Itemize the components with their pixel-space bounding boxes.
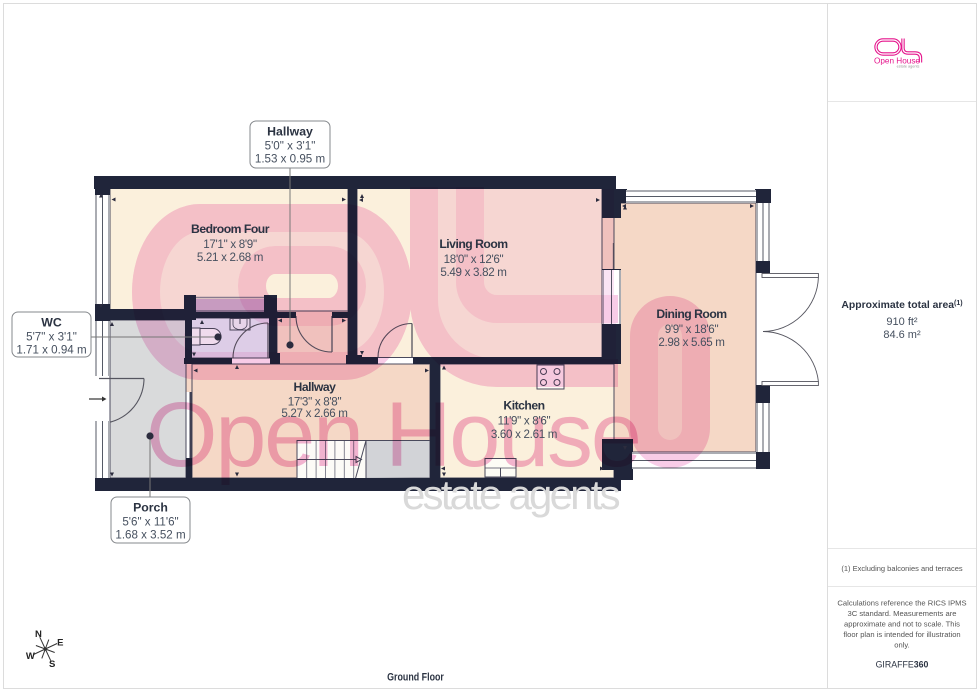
svg-text:18'0" x 12'6": 18'0" x 12'6" <box>444 253 504 266</box>
svg-text:Hallway: Hallway <box>267 125 313 139</box>
svg-text:Ground Floor: Ground Floor <box>387 672 444 684</box>
svg-text:S: S <box>49 659 55 670</box>
svg-text:Bedroom Four: Bedroom Four <box>191 222 270 236</box>
svg-text:17'1" x 8'9": 17'1" x 8'9" <box>203 238 257 251</box>
svg-text:5'6" x 11'6": 5'6" x 11'6" <box>122 515 178 528</box>
svg-text:3.60 x 2.61 m: 3.60 x 2.61 m <box>491 428 557 441</box>
svg-text:9'9" x 18'6": 9'9" x 18'6" <box>665 323 719 336</box>
svg-text:WC: WC <box>41 316 62 330</box>
svg-text:5.21 x 2.68 m: 5.21 x 2.68 m <box>197 251 263 264</box>
svg-text:2.98 x 5.65 m: 2.98 x 5.65 m <box>658 336 724 349</box>
svg-text:Porch: Porch <box>133 501 168 515</box>
svg-text:910 ft²: 910 ft² <box>886 316 918 328</box>
svg-text:Calculations reference the RIC: Calculations reference the RICS IPMS <box>837 599 966 608</box>
svg-text:3C standard. Measurements are: 3C standard. Measurements are <box>848 609 957 618</box>
svg-text:Living Room: Living Room <box>439 237 508 251</box>
svg-text:Dining Room: Dining Room <box>656 307 727 321</box>
svg-text:Hallway: Hallway <box>294 380 337 394</box>
svg-text:11'9" x 8'6": 11'9" x 8'6" <box>498 415 551 428</box>
svg-text:5.27 x 2.66 m: 5.27 x 2.66 m <box>281 407 347 420</box>
svg-text:1.68 x 3.52 m: 1.68 x 3.52 m <box>115 528 185 541</box>
svg-text:GIRAFFE360: GIRAFFE360 <box>876 660 929 670</box>
svg-text:floor plan is intended for ill: floor plan is intended for illustration <box>843 630 960 639</box>
svg-text:5'7" x 3'1": 5'7" x 3'1" <box>26 330 77 343</box>
svg-text:84.6 m²: 84.6 m² <box>883 329 921 341</box>
svg-text:W: W <box>26 651 35 662</box>
svg-text:Approximate total area(1): Approximate total area(1) <box>841 300 962 312</box>
svg-text:5.49 x 3.82 m: 5.49 x 3.82 m <box>440 266 506 279</box>
svg-text:approximate and not to scale.: approximate and not to scale. This <box>844 620 960 629</box>
svg-text:estate agents: estate agents <box>897 65 920 69</box>
svg-text:Kitchen: Kitchen <box>503 399 544 413</box>
svg-text:estate agents: estate agents <box>402 471 620 518</box>
svg-text:(1) Excluding balconies and te: (1) Excluding balconies and terraces <box>841 564 963 573</box>
svg-text:1.53 x 0.95 m: 1.53 x 0.95 m <box>255 152 325 165</box>
svg-text:1.71 x 0.94 m: 1.71 x 0.94 m <box>16 343 86 356</box>
svg-text:only.: only. <box>894 641 909 650</box>
svg-text:5'0" x 3'1": 5'0" x 3'1" <box>265 139 316 152</box>
svg-text:E: E <box>57 637 63 648</box>
svg-text:N: N <box>35 629 42 640</box>
